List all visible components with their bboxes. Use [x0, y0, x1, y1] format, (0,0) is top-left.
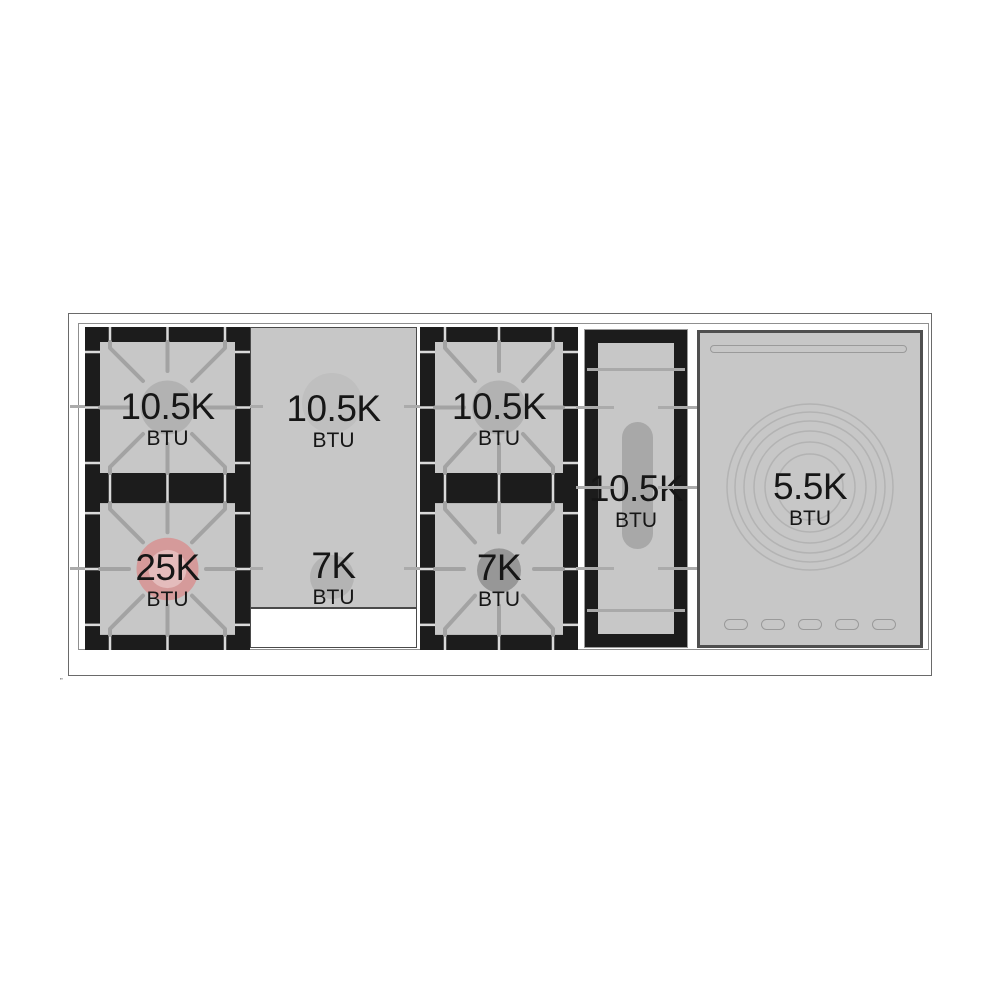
- grate-stub-line: [70, 567, 85, 570]
- burner-value: 10.5K: [85, 388, 250, 426]
- burner-value: 10.5K: [585, 470, 687, 508]
- grate-stub-line: [576, 567, 614, 570]
- burner-label: 25K BTU: [85, 549, 250, 612]
- burner-label: 10.5K BTU: [585, 470, 687, 533]
- griddle-section: 10.5K BTU 7K BTU: [250, 327, 417, 608]
- burner-top-left: 10.5K BTU: [85, 327, 250, 488]
- burner-unit: BTU: [420, 588, 578, 612]
- grate-stub-line: [70, 405, 85, 408]
- burner-label: 10.5K BTU: [420, 388, 578, 451]
- burner-unit: BTU: [251, 586, 416, 610]
- burner-label: 10.5K BTU: [251, 390, 416, 453]
- burner-label: 7K BTU: [420, 549, 578, 612]
- burner-value: 5.5K: [700, 468, 920, 506]
- burner-group-left: 10.5K BTU 25K BTU: [85, 327, 250, 650]
- control-pill-icon: [761, 619, 785, 630]
- grate-stub-line: [404, 405, 420, 408]
- burner-label: 10.5K BTU: [85, 388, 250, 451]
- grate-line: [587, 609, 685, 612]
- grate-stub-line: [658, 486, 697, 489]
- burner-unit: BTU: [85, 588, 250, 612]
- grate-stub-line: [576, 486, 614, 489]
- control-pill-icon: [835, 619, 859, 630]
- burner-unit: BTU: [700, 507, 920, 531]
- burner-label: 7K BTU: [251, 547, 416, 610]
- control-pill-icon: [872, 619, 896, 630]
- control-pill-icon: [798, 619, 822, 630]
- grate-stub-line: [658, 406, 697, 409]
- burner-top-middle: 10.5K BTU: [420, 327, 578, 488]
- burner-value: 25K: [85, 549, 250, 587]
- burner-bottom-left: 25K BTU: [85, 488, 250, 650]
- grate-stub-line: [658, 567, 697, 570]
- grate-stub-line: [250, 405, 263, 408]
- griddle-tray: [250, 608, 417, 648]
- warming-zone-section: 5.5K BTU: [697, 330, 923, 648]
- burner-value: 10.5K: [251, 390, 416, 428]
- grate-stub-line: [250, 567, 263, 570]
- stray-mark: ”: [60, 677, 63, 686]
- burner-value: 7K: [420, 549, 578, 587]
- grate-stub-line: [576, 406, 614, 409]
- grate-line: [587, 368, 685, 371]
- burner-unit: BTU: [85, 427, 250, 451]
- burner-group-middle: 10.5K BTU 7K BTU: [420, 327, 578, 650]
- oval-burner-section: 10.5K BTU: [584, 329, 688, 648]
- control-pill-row: [724, 619, 896, 630]
- burner-unit: BTU: [251, 429, 416, 453]
- burner-bottom-middle: 7K BTU: [420, 488, 578, 650]
- burner-unit: BTU: [585, 509, 687, 533]
- burner-unit: BTU: [420, 427, 578, 451]
- burner-label: 5.5K BTU: [700, 468, 920, 531]
- burner-value: 10.5K: [420, 388, 578, 426]
- control-pill-icon: [724, 619, 748, 630]
- grate-stub-line: [404, 567, 420, 570]
- burner-value: 7K: [251, 547, 416, 585]
